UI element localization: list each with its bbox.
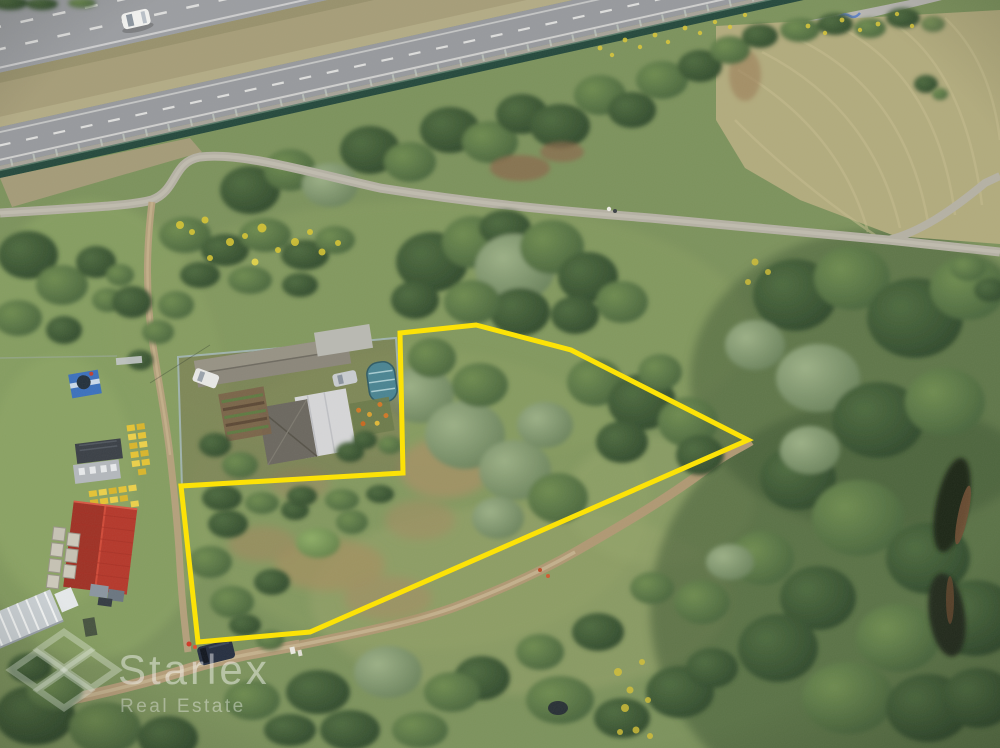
- grain-overlay: [0, 0, 1000, 748]
- aerial-photo: Starlex Real Estate: [0, 0, 1000, 748]
- aerial-photo-canvas: Starlex Real Estate: [0, 0, 1000, 748]
